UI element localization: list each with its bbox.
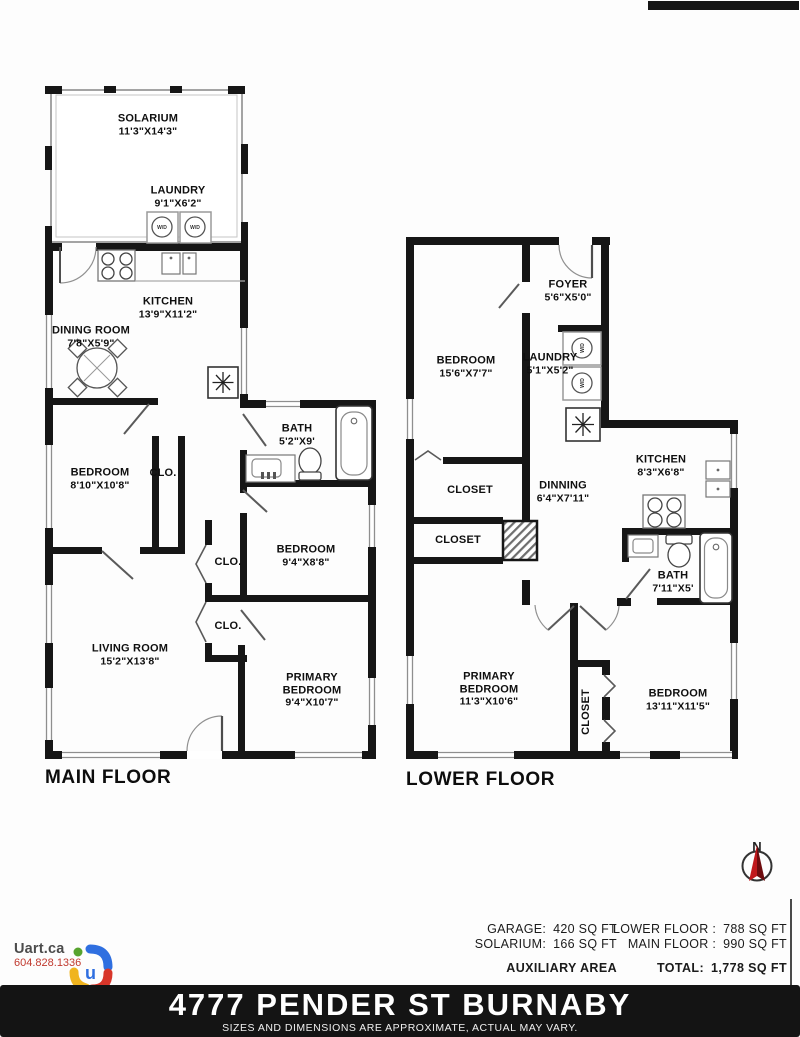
room-label-lower-primary-bedroom: PRIMARY BEDROOM11'3"X10'6" [460,670,519,708]
floorplan-drawing: W/D W/D [0,0,800,1037]
branding-block: Uart.ca 604.828.1336 [14,941,81,969]
wd-label: W/D [190,225,200,231]
room-label-lower-bedroom-1: BEDROOM15'6"X7'7" [437,355,496,380]
room-label-foyer: FOYER5'6"X5'0" [544,279,591,304]
area-row-garage: GARAGE:420 SQ FT [475,922,617,937]
wd-label: W/D [157,225,167,231]
bathtub-icon [336,406,372,480]
room-label-bedroom-1: BEDROOM8'10"X10'8" [70,467,129,492]
property-address: 4777 PENDER ST BURNABY [0,989,800,1021]
room-label-closet-2: CLO. [214,556,241,569]
brand-phone: 604.828.1336 [14,957,81,969]
auxiliary-area-label: AUXILIARY AREA [475,961,617,976]
total-area-row: TOTAL:1,778 SQ FT [613,961,787,976]
toilet-icon [666,535,692,567]
logo-letter: u [85,963,96,983]
stairs-hatch-box [503,521,537,560]
room-label-living-room: LIVING ROOM15'2"X13'8" [92,643,168,668]
kitchen-sink-icon [706,461,730,497]
fridge-icon [566,408,600,441]
compass-icon: N [743,839,772,881]
lower-floor-title: LOWER FLOOR [406,769,555,791]
room-label-bedroom-2: BEDROOM9'4"X8'8" [277,544,336,569]
address-title-bar: 4777 PENDER ST BURNABY SIZES AND DIMENSI… [0,985,800,1037]
fridge-icon [208,367,238,398]
room-label-lower-bath: BATH7'11"X5' [652,570,693,595]
footer-divider-line [790,899,792,985]
area-row-lower-floor: LOWER FLOOR :788 SQ FT [613,922,787,937]
area-table-left-column: GARAGE:420 SQ FT SOLARIUM:166 SQ FT AUXI… [475,922,617,976]
vanity-sink-icon [628,535,658,557]
bathtub-icon [700,533,732,603]
room-label-lower-closet-2: CLOSET [435,534,481,547]
room-label-lower-laundry: LAUNDRY5'1"X5'2" [523,352,578,377]
room-label-laundry: LAUNDRY9'1"X6'2" [151,185,206,210]
stove-icon [643,495,685,528]
room-label-dinning: DINNING6'4"X7'11" [537,480,590,505]
room-label-kitchen: KITCHEN13'9"X11'2" [139,296,198,321]
room-label-bath: BATH5'2"X9' [279,423,315,448]
wd-label: W/D [580,343,586,353]
room-label-lower-closet-1: CLOSET [447,484,493,497]
vanity-sink-icon [246,455,295,482]
main-floor-title: MAIN FLOOR [45,767,171,789]
room-label-solarium: SOLARIUM11'3"X14'3" [118,113,178,138]
room-label-lower-kitchen: KITCHEN8'3"X6'8" [636,454,686,479]
disclaimer-text: SIZES AND DIMENSIONS ARE APPROXIMATE, AC… [0,1022,800,1034]
room-label-closet-1: CLO. [149,467,176,480]
floorplan-page: W/D W/D [0,0,800,1037]
room-label-dining-room: DINING ROOM7'8"X5'9" [52,325,130,350]
room-label-primary-bedroom: PRIMARY BEDROOM9'4"X10'7" [283,671,342,709]
area-table-right-column: LOWER FLOOR :788 SQ FT MAIN FLOOR :990 S… [613,922,787,976]
wd-label: W/D [580,378,586,388]
brand-site-name: Uart.ca [14,941,81,957]
stove-icon [98,250,135,281]
area-row-main-floor: MAIN FLOOR :990 SQ FT [613,937,787,952]
room-label-closet-3: CLO. [214,620,241,633]
toilet-icon [299,448,321,480]
kitchen-sink-icon [135,253,245,281]
room-label-lower-bedroom-2: BEDROOM13'11"X11'5" [646,688,710,713]
area-row-solarium: SOLARIUM:166 SQ FT [475,937,617,952]
room-label-lower-closet-3: CLOSET [580,689,593,735]
